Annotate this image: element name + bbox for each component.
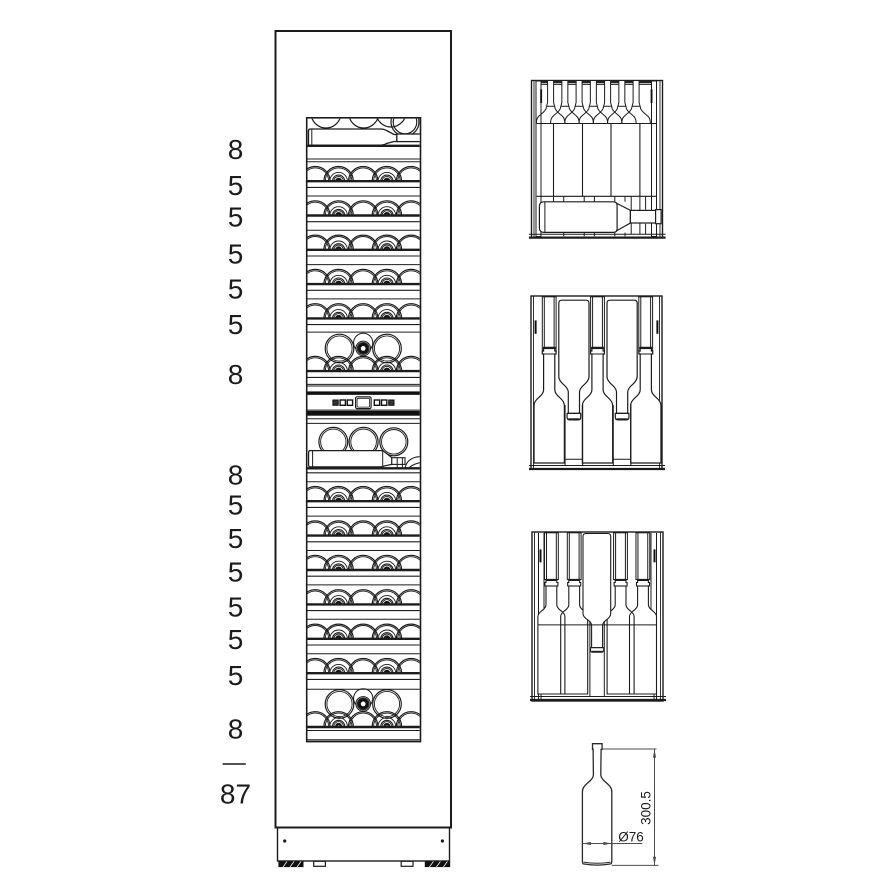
svg-text:Ø76: Ø76 (618, 830, 644, 845)
svg-text:5: 5 (228, 202, 244, 233)
svg-text:5: 5 (228, 490, 244, 521)
svg-text:5: 5 (228, 557, 244, 588)
svg-text:8: 8 (228, 714, 244, 745)
svg-text:5: 5 (228, 309, 244, 340)
svg-text:5: 5 (228, 170, 244, 201)
svg-text:8: 8 (228, 459, 244, 490)
svg-text:8: 8 (228, 359, 244, 390)
svg-text:5: 5 (228, 239, 244, 270)
svg-text:5: 5 (228, 660, 244, 691)
svg-text:5: 5 (228, 274, 244, 305)
svg-text:5: 5 (228, 592, 244, 623)
svg-text:87: 87 (220, 779, 251, 810)
svg-text:300.5: 300.5 (639, 791, 654, 825)
svg-text:8: 8 (228, 134, 244, 165)
svg-text:5: 5 (228, 624, 244, 655)
svg-text:5: 5 (228, 523, 244, 554)
